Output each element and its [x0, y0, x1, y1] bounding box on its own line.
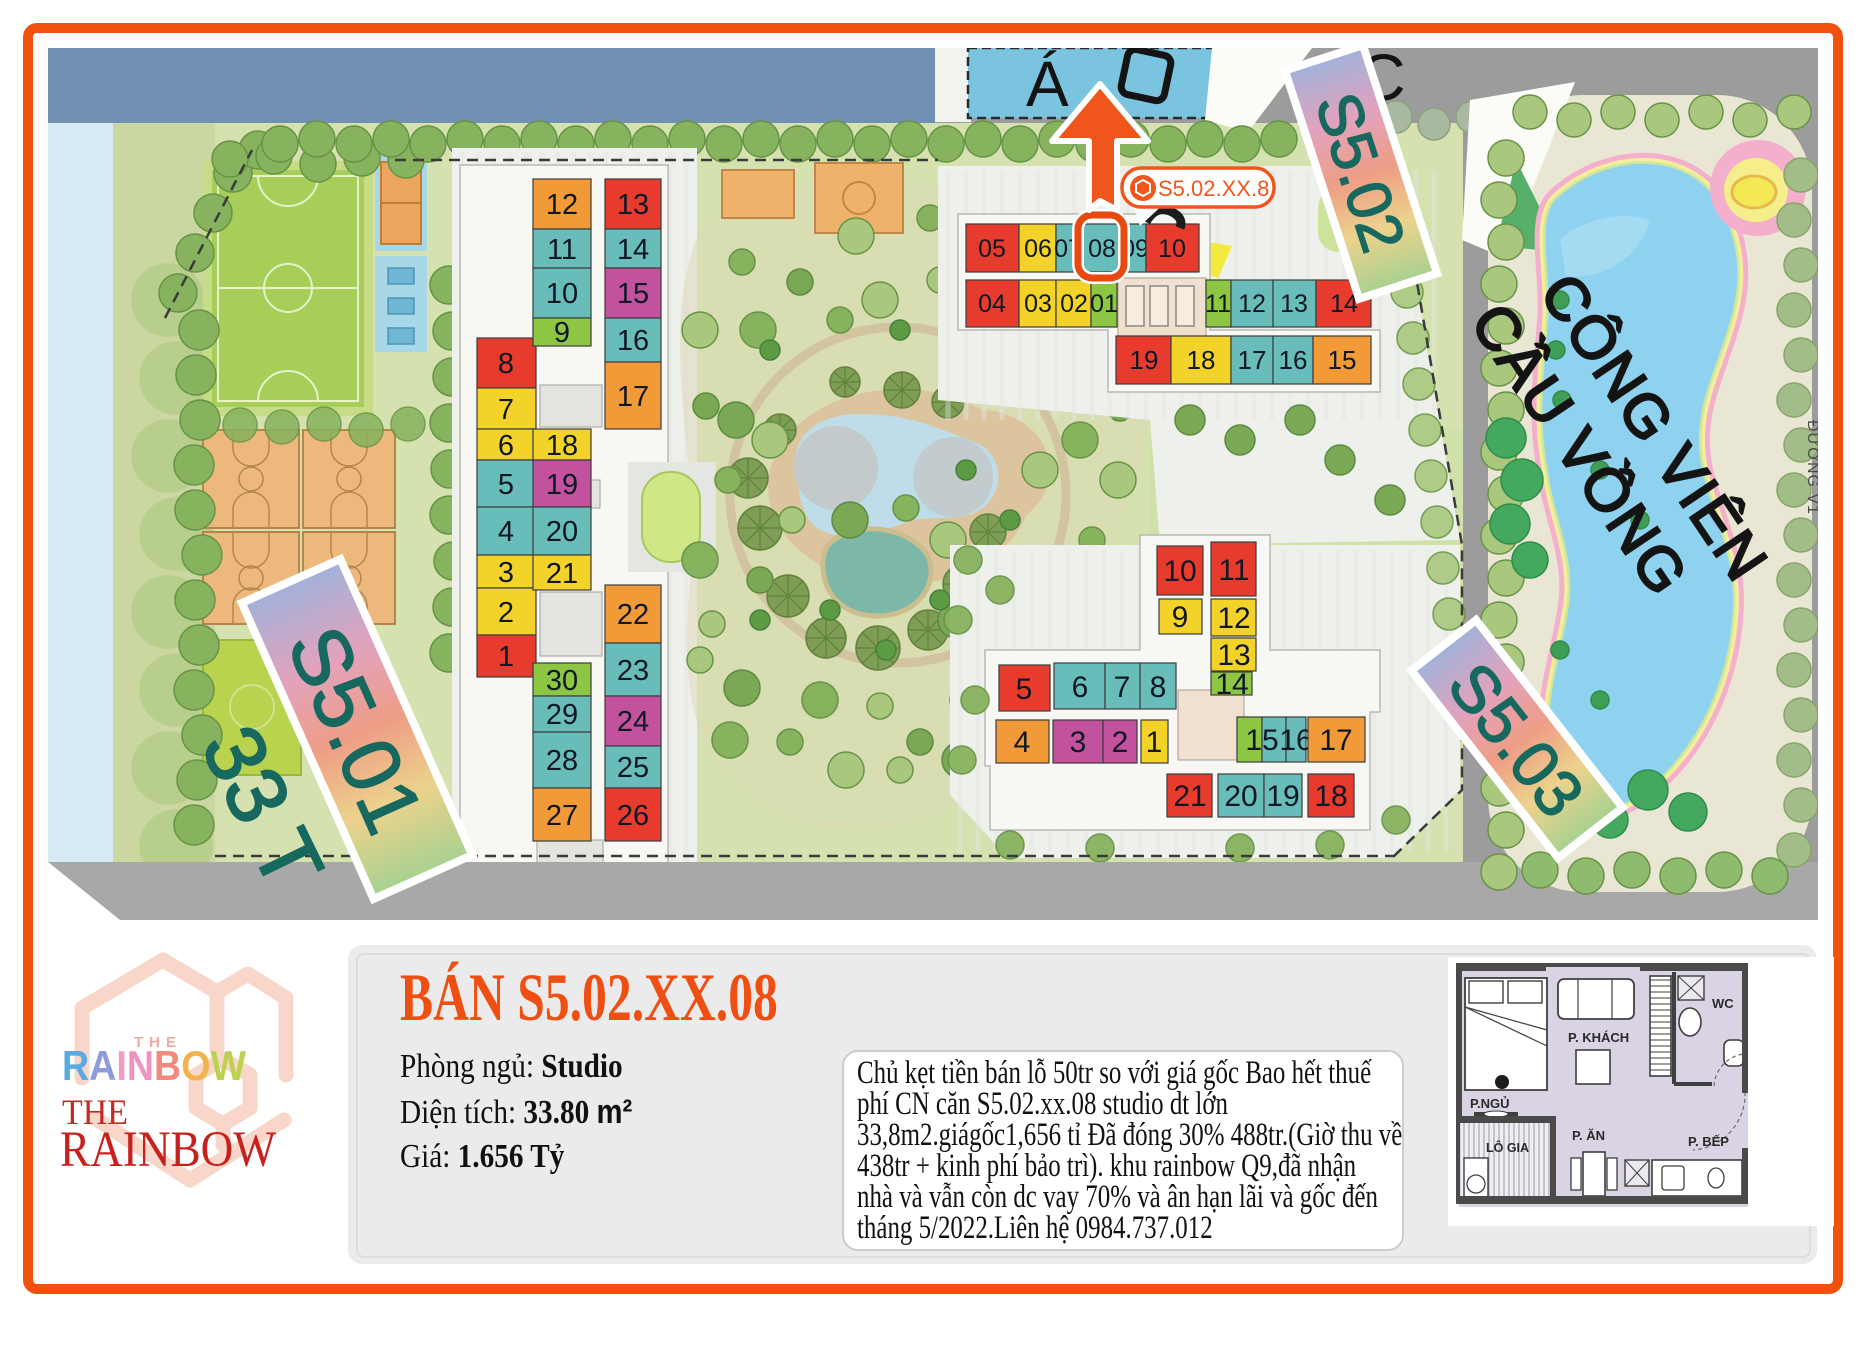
svg-text:P. ĂN: P. ĂN [1572, 1128, 1605, 1143]
svg-text:P. KHÁCH: P. KHÁCH [1568, 1030, 1629, 1045]
svg-text:WC: WC [1712, 996, 1734, 1011]
svg-text:P. BẾP: P. BẾP [1688, 1134, 1729, 1149]
svg-text:P.NGỦ: P.NGỦ [1470, 1096, 1510, 1111]
svg-text:RAINBOW: RAINBOW [62, 1042, 246, 1089]
svg-text:LÔ GIA: LÔ GIA [1486, 1140, 1529, 1155]
svg-text:RAINBOW: RAINBOW [60, 1122, 277, 1178]
